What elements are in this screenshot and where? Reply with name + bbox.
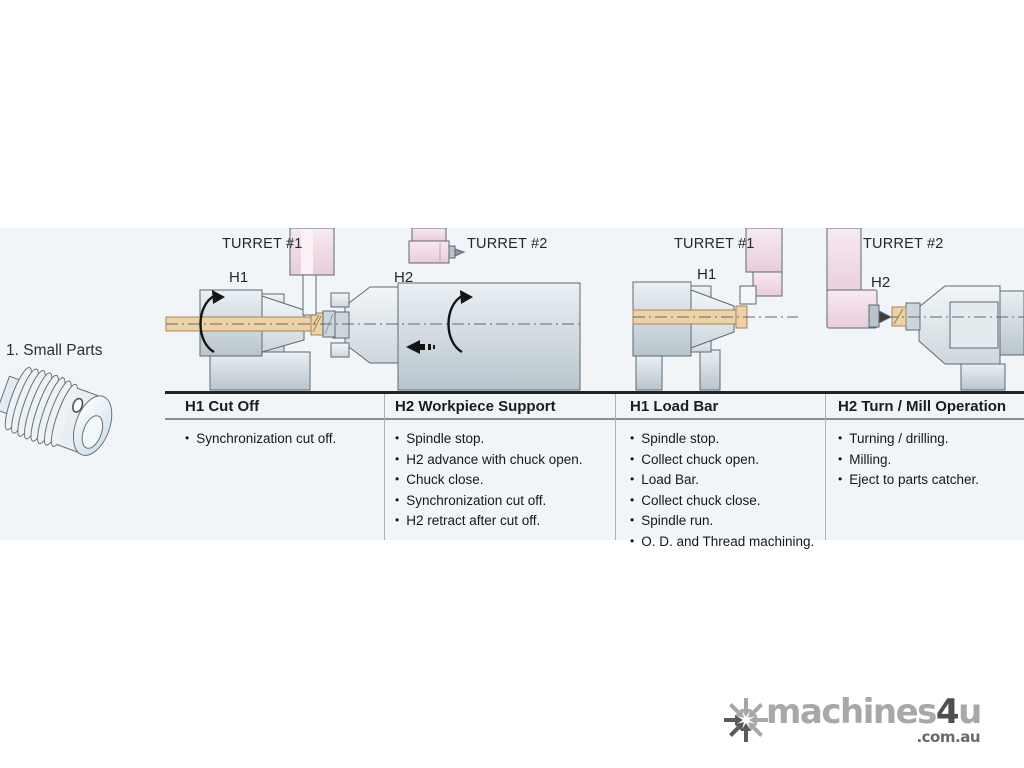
column-header: H2 Turn / Mill Operation — [826, 394, 1024, 420]
bullet-item: Milling. — [838, 450, 1020, 471]
bullet-item: Load Bar. — [630, 470, 821, 491]
panel-turnmill — [827, 228, 1024, 390]
column-header: H1 Cut Off — [165, 394, 384, 420]
bullet-item: Spindle stop. — [395, 429, 611, 450]
bullet-item: Eject to parts catcher. — [838, 470, 1020, 491]
watermark-brand: machines4u — [766, 692, 981, 732]
bullet-item: O. D. and Thread machining. — [630, 532, 821, 553]
mini-turret2-icon — [409, 228, 464, 263]
panel-loadbar — [633, 228, 798, 390]
watermark-accent: 4 — [936, 692, 958, 732]
bullet-item: Spindle run. — [630, 511, 821, 532]
bullet-item: H2 advance with chuck open. — [395, 450, 611, 471]
operation-table: H1 Cut Off Synchronization cut off. H2 W… — [165, 391, 1024, 540]
bullet-list: Spindle stop. Collect chuck open. Load B… — [616, 420, 825, 552]
panel2-turret1-label: TURRET #1 — [674, 236, 755, 252]
panel-cutoff — [166, 228, 580, 390]
bullet-item: Synchronization cut off. — [395, 491, 611, 512]
column-h2-turn-mill: H2 Turn / Mill Operation Turning / drill… — [826, 394, 1024, 540]
section-title: 1. Small Parts — [6, 342, 102, 360]
panel1-h1-label: H1 — [229, 269, 248, 286]
column-header: H2 Workpiece Support — [385, 394, 615, 420]
bullet-item: Synchronization cut off. — [185, 429, 380, 450]
bullet-item: H2 retract after cut off. — [395, 511, 611, 532]
bullet-item: Chuck close. — [395, 470, 611, 491]
column-h1-load-bar: H1 Load Bar Spindle stop. Collect chuck … — [616, 394, 826, 540]
watermark-domain: .com.au — [766, 728, 980, 746]
column-h1-cutoff: H1 Cut Off Synchronization cut off. — [165, 394, 385, 540]
bullet-list: Synchronization cut off. — [165, 420, 384, 450]
snowflake-icon — [722, 696, 770, 744]
small-part-illustration — [0, 362, 130, 482]
column-header: H1 Load Bar — [616, 394, 825, 420]
panel1-h2-label: H2 — [394, 269, 413, 286]
column-h2-workpiece-support: H2 Workpiece Support Spindle stop. H2 ad… — [385, 394, 616, 540]
watermark: machines4u .com.au — [722, 694, 1022, 758]
bullet-item: Collect chuck close. — [630, 491, 821, 512]
panel1-turret1-label: TURRET #1 — [222, 236, 303, 252]
panel1-turret2-label: TURRET #2 — [467, 236, 548, 252]
bullet-item: Turning / drilling. — [838, 429, 1020, 450]
panel2-h1-label: H1 — [697, 266, 716, 283]
panel2-h2-label: H2 — [871, 274, 890, 291]
bullet-list: Spindle stop. H2 advance with chuck open… — [385, 420, 615, 532]
bullet-list: Turning / drilling. Milling. Eject to pa… — [826, 420, 1024, 491]
bullet-item: Collect chuck open. — [630, 450, 821, 471]
panel2-turret2-label: TURRET #2 — [863, 236, 944, 252]
bullet-item: Spindle stop. — [630, 429, 821, 450]
